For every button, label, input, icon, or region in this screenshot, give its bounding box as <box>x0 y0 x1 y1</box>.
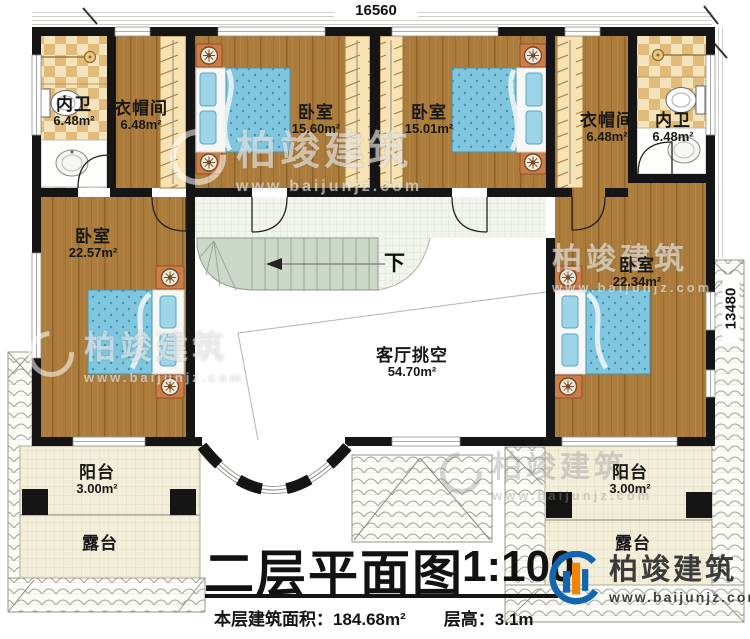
pillow <box>160 296 176 328</box>
balcony-pillar <box>22 489 48 515</box>
sink-basin <box>56 150 88 176</box>
dimension-right: 13480 <box>723 275 740 343</box>
balcony-pillar <box>170 489 196 515</box>
pillow <box>562 296 578 328</box>
pillow <box>160 334 176 366</box>
mattress <box>226 68 290 152</box>
title-underline <box>205 594 558 598</box>
mattress <box>452 68 516 152</box>
toilet-bowl <box>666 88 696 113</box>
pillow <box>200 73 216 106</box>
bay-window <box>202 446 348 490</box>
floor-plan-page: 柏竣建筑 www.baijunjz.com 柏竣建筑 www.baijunjz.… <box>0 0 750 639</box>
area-label: 本层建筑面积： <box>214 610 333 629</box>
balcony-pillar <box>686 492 712 518</box>
floor-height-label: 层高： <box>444 610 495 629</box>
roof-porch-center <box>352 455 492 542</box>
hall-floor <box>195 197 546 238</box>
pillow <box>200 111 216 144</box>
dimension-top: 16560 <box>334 2 418 19</box>
logo-brand: 柏竣建筑 <box>609 556 750 585</box>
stairs-down-label: 下 <box>384 247 405 277</box>
area-value: 184.68m² <box>333 610 406 629</box>
plan-subtitle: 本层建筑面积：184.68m²层高：3.1m <box>214 605 534 630</box>
balcony-pillar <box>546 492 572 518</box>
pillow <box>526 73 542 106</box>
toilet-tank <box>696 86 705 114</box>
stairs <box>197 238 385 290</box>
company-logo-icon <box>543 551 601 609</box>
floor-height-value: 3.1m <box>495 610 534 629</box>
pillow <box>562 334 578 366</box>
toilet-tank <box>41 89 50 117</box>
pillow <box>526 111 542 144</box>
logo-url: www.baijunjz.com <box>609 589 750 605</box>
toilet-bowl <box>51 91 81 116</box>
company-logo: 柏竣建筑 www.baijunjz.com <box>543 551 750 609</box>
